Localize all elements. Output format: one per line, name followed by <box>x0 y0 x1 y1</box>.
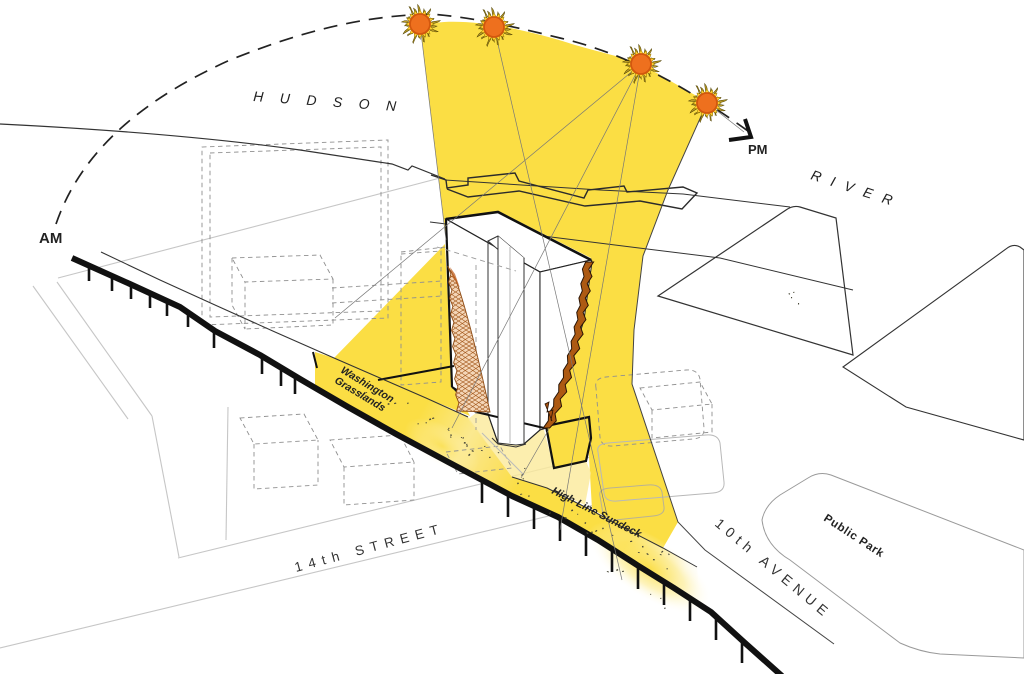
svg-text:AM: AM <box>39 230 62 247</box>
svg-text:PM: PM <box>748 142 768 157</box>
